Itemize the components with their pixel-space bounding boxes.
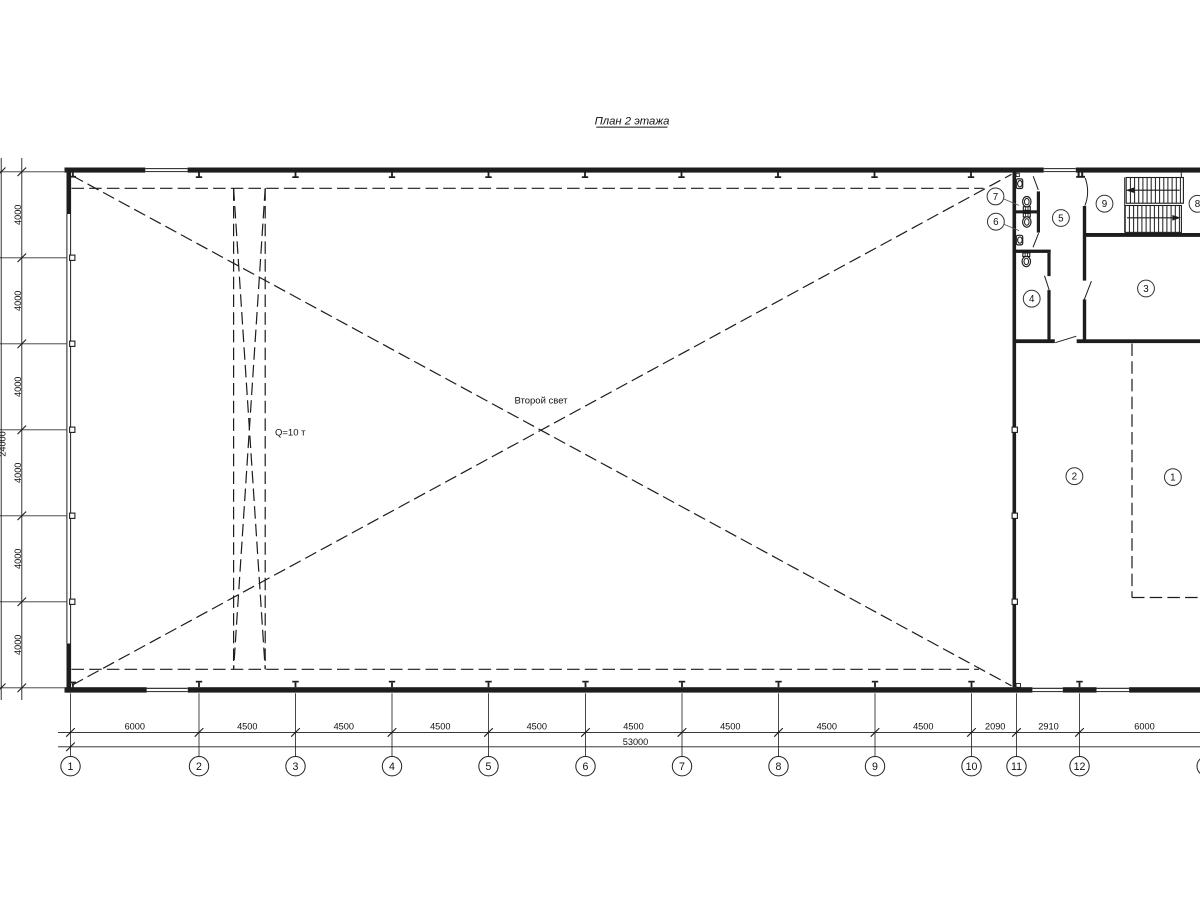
svg-text:2910: 2910 [1038,722,1058,732]
svg-text:7: 7 [993,192,998,203]
svg-text:4: 4 [389,761,395,773]
svg-text:4000: 4000 [13,635,23,655]
svg-text:4000: 4000 [13,377,23,397]
svg-text:12: 12 [1074,761,1086,773]
svg-text:6000: 6000 [1134,722,1154,732]
svg-text:8: 8 [776,761,782,773]
svg-text:4000: 4000 [13,549,23,569]
svg-text:5: 5 [486,761,492,773]
svg-text:8: 8 [1195,199,1200,210]
svg-text:4000: 4000 [13,291,23,311]
svg-text:6: 6 [993,217,999,228]
svg-text:9: 9 [1102,199,1107,210]
svg-text:Второй свет: Второй свет [514,396,568,407]
svg-text:4500: 4500 [237,722,257,732]
svg-text:4500: 4500 [817,722,837,732]
svg-text:2090: 2090 [985,722,1005,732]
svg-text:4000: 4000 [13,205,23,225]
svg-text:1: 1 [68,761,74,773]
svg-text:10: 10 [966,761,978,773]
svg-text:4500: 4500 [913,722,933,732]
svg-text:2: 2 [1072,472,1077,483]
svg-text:4500: 4500 [720,722,740,732]
svg-text:4500: 4500 [430,722,450,732]
svg-text:11: 11 [1011,761,1022,773]
svg-text:4500: 4500 [527,722,547,732]
svg-text:4500: 4500 [623,722,643,732]
svg-text:5: 5 [1058,213,1064,224]
svg-text:4000: 4000 [13,463,23,483]
svg-text:7: 7 [679,761,685,773]
svg-text:1: 1 [1170,473,1175,484]
svg-text:6000: 6000 [125,722,145,732]
svg-text:Q=10 т: Q=10 т [275,427,306,438]
svg-text:4: 4 [1029,294,1035,305]
svg-text:53000: 53000 [623,737,649,747]
svg-text:6: 6 [583,761,589,773]
svg-text:2: 2 [196,761,202,773]
svg-text:9: 9 [872,761,878,773]
svg-text:3: 3 [293,761,299,773]
svg-text:3: 3 [1143,284,1149,295]
svg-text:План 2 этажа: План 2 этажа [595,116,670,128]
svg-text:24000: 24000 [0,431,8,457]
svg-text:4500: 4500 [334,722,354,732]
